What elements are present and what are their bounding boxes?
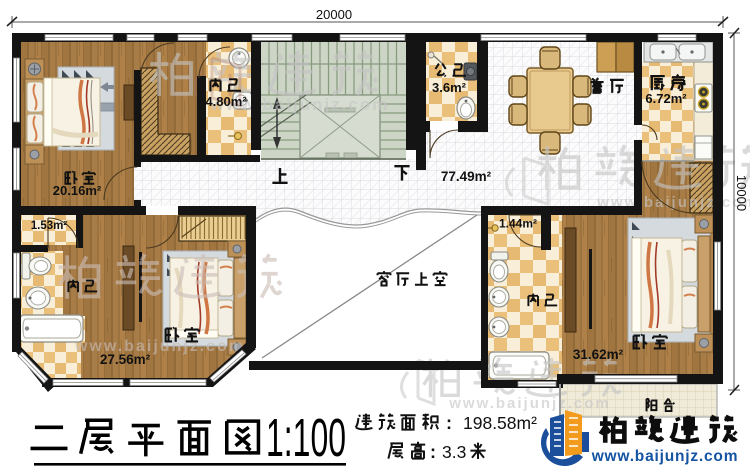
svg-text:1:100: 1:100	[266, 408, 346, 468]
svg-text:www.baijunjz.com: www.baijunjz.com	[591, 448, 739, 465]
svg-text::: :	[446, 413, 452, 433]
svg-text:4.80m²: 4.80m²	[205, 94, 247, 109]
svg-text:3.6m²: 3.6m²	[432, 80, 467, 95]
svg-text:1.53m²: 1.53m²	[31, 220, 68, 232]
svg-text::: :	[430, 442, 436, 462]
svg-text:10000: 10000	[734, 175, 749, 211]
svg-text:www.baijunjz.com: www.baijunjz.com	[448, 395, 610, 412]
svg-text:77.49m²: 77.49m²	[441, 169, 492, 184]
svg-text:198.58m²: 198.58m²	[463, 413, 537, 433]
svg-text:27.56m²: 27.56m²	[100, 352, 151, 367]
svg-text:31.62m²: 31.62m²	[573, 347, 624, 362]
svg-text:20.16m²: 20.16m²	[53, 183, 102, 198]
svg-text:3.3: 3.3	[442, 442, 466, 462]
svg-text:6.72m²: 6.72m²	[645, 91, 687, 106]
svg-text:1.44m²: 1.44m²	[499, 217, 537, 231]
svg-text:20000: 20000	[316, 7, 352, 22]
